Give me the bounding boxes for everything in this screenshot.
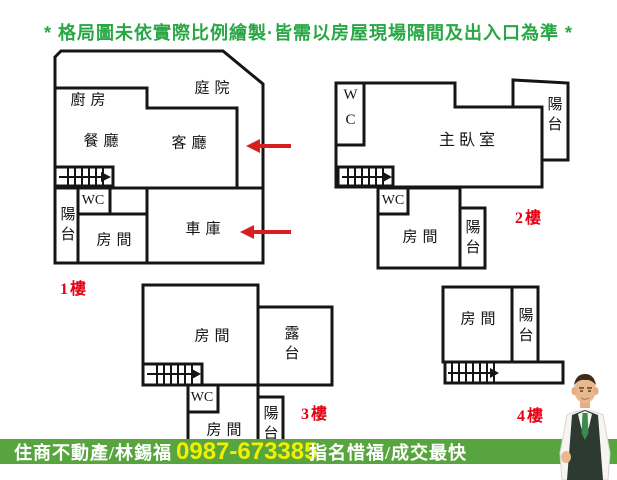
floor-label-3: 3樓	[301, 400, 329, 424]
floor-1-stairs-icon	[59, 167, 111, 186]
floor-2-walls	[336, 80, 568, 268]
agency-slogan: 指名惜福/成交最快	[309, 439, 467, 465]
room-label-wc-f3: WC	[191, 391, 214, 405]
floor-2-stairs-icon	[342, 167, 392, 186]
floor-label-2: 2樓	[515, 204, 543, 228]
phone-number: 0987-673385	[176, 438, 317, 466]
room-label-courtyard: 庭院	[189, 82, 234, 97]
room-label-living: 客廳	[166, 137, 211, 152]
room-label-room-f4: 房間	[455, 313, 500, 328]
floor-4-walls	[443, 287, 563, 383]
room-label-balcony-upper-f2: 陽台	[546, 96, 561, 136]
entrance-arrow-icon	[246, 139, 291, 153]
room-label-balcony-f4: 陽台	[517, 307, 532, 347]
agent-photo	[554, 369, 617, 480]
floor-4-stairs-icon	[448, 362, 499, 383]
floor-3-stairs-icon	[147, 364, 201, 385]
room-label-wc-f1: WC	[82, 194, 105, 208]
agency-name: 住商不動產/林錫福	[14, 439, 172, 465]
room-label-kitchen: 廚房	[65, 94, 110, 109]
garage-arrow-icon	[240, 225, 291, 239]
room-label-master: 主臥室	[435, 133, 499, 149]
room-label-room-upper-f3: 房間	[189, 330, 234, 345]
floor-label-1: 1樓	[60, 275, 88, 299]
room-label-balcony-f1: 陽台	[59, 206, 74, 246]
room-label-room-f3: 房間	[201, 424, 246, 439]
floorplan-flyer: * 格局圖未依實際比例繪製·皆需以房屋現場隔間及出入口為準 *	[0, 0, 617, 480]
room-label-room-f1: 房間	[91, 234, 136, 249]
room-label-garage: 車庫	[180, 223, 225, 238]
room-label-wc-f2: WC	[382, 194, 405, 208]
room-label-wc-upper-f2: WC	[343, 87, 358, 137]
room-label-room-f2: 房間	[397, 231, 442, 246]
room-label-balcony-f2: 陽台	[464, 219, 479, 259]
contact-banner: 住商不動產/林錫福 0987-673385 指名惜福/成交最快	[0, 439, 617, 464]
floor-label-4: 4樓	[517, 402, 545, 426]
room-label-dining: 餐廳	[78, 135, 123, 150]
room-label-terrace: 露台	[283, 325, 298, 365]
